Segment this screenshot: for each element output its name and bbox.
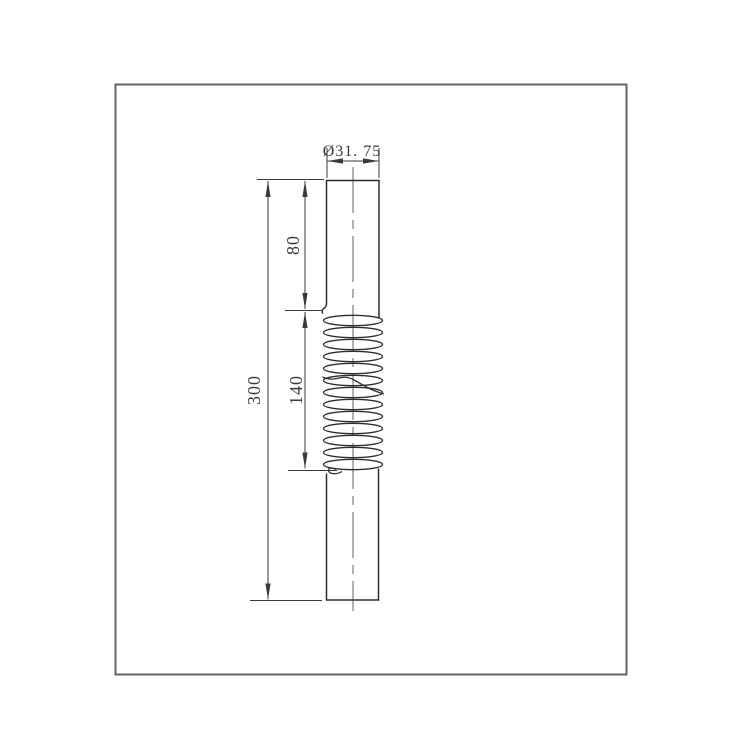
arrow-down bbox=[302, 293, 307, 309]
part-left-edge-upper bbox=[322, 181, 326, 314]
arrow-up bbox=[302, 181, 307, 197]
dimension-label-overall-length: 300 bbox=[244, 375, 264, 405]
arrow-down bbox=[265, 584, 270, 600]
arrow-up bbox=[265, 181, 270, 197]
arrow-down bbox=[302, 453, 307, 469]
drawing-sheet: Ø31. 75 80 140 300 bbox=[0, 0, 750, 750]
dimension-label-thread-length: 140 bbox=[286, 375, 306, 405]
dimension-label-diameter: Ø31. 75 bbox=[323, 143, 382, 160]
dimension-label-upper-length: 80 bbox=[283, 235, 303, 255]
dimension-diameter: Ø31. 75 bbox=[323, 143, 382, 178]
dimension-upper-length: 80 bbox=[283, 181, 323, 311]
drawing-border bbox=[116, 85, 627, 675]
arrow-up bbox=[302, 312, 307, 328]
technical-drawing: Ø31. 75 80 140 300 bbox=[0, 0, 750, 750]
